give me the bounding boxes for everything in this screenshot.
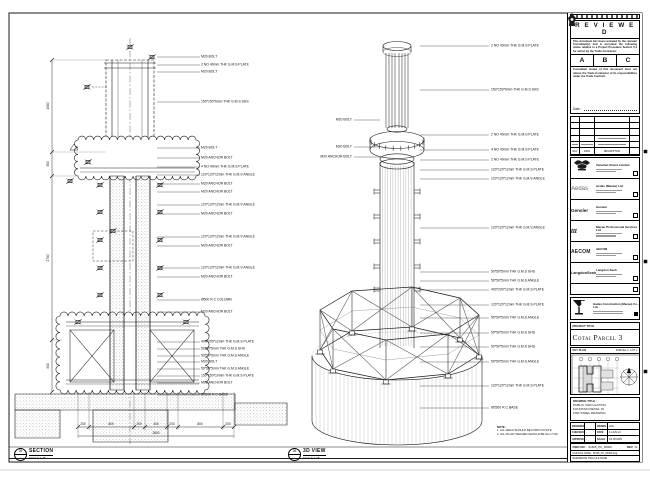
iso-detail-bubble: 06-	[288, 448, 301, 461]
section-annotation: Ø500 R.C COLUMN	[201, 298, 232, 301]
status-option-c: C	[616, 55, 639, 66]
consultant-checkbox	[633, 171, 639, 177]
section-annotation: M20 BOLT	[201, 55, 217, 58]
section-annotation: 50*50*5mm THK G.M.S ANGLE	[201, 367, 249, 370]
section-scale: SCALE 1:25	[29, 455, 53, 460]
dimension-value: 400	[153, 422, 158, 426]
sheet-shadow	[0, 469, 650, 471]
key-plan-drawing	[570, 353, 640, 396]
date-fill-line	[584, 106, 637, 111]
consultant-name: Aedas (Macau) Ltd.	[596, 185, 624, 188]
iso-title: 3D VIEW	[303, 448, 326, 454]
section-annotation: M20 ANCHOR BOLT	[201, 275, 233, 278]
iso-annotation: M20 BOLT	[336, 118, 352, 121]
section-annotation: 120*120*12mm THK G.M.S ANGLE	[201, 266, 255, 269]
title-block: R E V I E W E D This document has been r…	[567, 13, 642, 462]
cad-file-rows: CAD FILE NAME : 51525_PC_00000.dwg REFER…	[570, 451, 640, 462]
project-name-row: Cotai Parcel 3	[570, 329, 640, 346]
section-annotation: M20 ANCHOR BOLT	[201, 310, 233, 313]
mps-logo: ttt	[571, 227, 596, 235]
section-annotation: M20 BOLT	[201, 360, 217, 363]
dimension-value: 200	[80, 422, 85, 426]
section-annotation: M20 BOLT	[201, 146, 217, 149]
section-annotation: 400*200*12mm THK G.M.S PLATE	[201, 340, 254, 343]
section-annotation: 150*150*10mm THK G.M.S PLATE	[201, 374, 254, 377]
review-status-options: A B C	[571, 54, 639, 67]
consultant-name: Macau Professional Services Ltd.	[596, 226, 639, 233]
section-detail-bubble: 05-	[14, 448, 27, 461]
iso-annotation: 120*120*12mm THK G.M.S PLATE	[491, 168, 544, 171]
section-annotation: Ø2500 R.C BASE	[201, 393, 228, 396]
contractor-name: Hadao Construction (Macau) Co., Ltd.	[593, 303, 639, 310]
iso-caption: 06- 3D VIEW SCALE 1:25	[288, 448, 326, 461]
drawing-title-line: FOR STEEL DRAWING	[573, 412, 637, 416]
rev-header: REV	[571, 148, 580, 154]
review-date-row: Date :	[573, 80, 637, 111]
section-annotation: M20 BOLT	[201, 70, 217, 73]
iso-annotation: 50*50*5mm THK G.M.S SHS	[491, 270, 535, 273]
section-annotation: 50*50*5mm THK G.M.S SHS	[201, 347, 245, 350]
dwg-no-value: 51525_PC_00000	[588, 445, 611, 449]
dimension-value: 900	[46, 363, 50, 368]
aecom-logo: AECOM	[571, 249, 596, 255]
gensler-logo: Gensler	[571, 208, 596, 213]
iso-annotation: Ø2500 R.C BASE	[491, 406, 518, 409]
iso-annotation: 2 NO 40mm THK G.M.S PLATE	[491, 133, 539, 136]
iso-annotation: 400*200*12mm THK G.M.S PLATE	[491, 288, 544, 291]
iso-annotation: 150*150*6mm THK G.M.S SHS	[491, 88, 539, 91]
dimension-value: 200	[136, 422, 141, 426]
consultant-checkbox	[633, 213, 639, 219]
drawing-title-block: DRAWING TITLE : PUBLIC CIRCULATION, FOUN…	[570, 397, 640, 421]
dimension-value: 2700	[46, 254, 50, 261]
section-title: SECTION	[29, 448, 53, 454]
section-annotation: M20 ANCHOR BOLT	[201, 212, 233, 215]
section-annotation: 2 NO 40mm THK G.M.S PLATE	[201, 63, 249, 66]
drawing-number-row: DWG NO : 51525_PC_00000 REV : C	[570, 443, 640, 451]
consultant-name: Langdon Seah	[596, 269, 622, 272]
consultant-list: Venetian Orient Limited Aedas Aedas (Mac…	[570, 157, 640, 295]
iso-scale: SCALE 1:25	[303, 455, 326, 460]
contractor-block: Hadao Construction (Macau) Co., Ltd.	[570, 297, 640, 321]
iso-annotation: 120*120*12mm THK G.M.S ANGLE	[491, 226, 545, 229]
iso-view-linework	[312, 42, 484, 446]
dimension-value: 800	[108, 422, 113, 426]
dimension-value: 800	[197, 422, 202, 426]
iso-annotation: M20 BOLT	[336, 145, 352, 148]
section-annotation: M20 ANCHOR BOLT	[201, 244, 233, 247]
consultant-checkbox	[633, 255, 639, 261]
iso-annotation: M20 ANCHOR BOLT	[320, 155, 352, 158]
status-option-b: B	[593, 55, 616, 66]
langdon-seah-logo: LangdonSeah	[571, 271, 596, 275]
general-notes: NOTE : 1. ALL WELD SHOULD BE FORM ON SIT…	[497, 426, 565, 436]
consultant-checkbox	[633, 287, 639, 293]
parcel-label: PARCEL 1, LOT 2	[616, 349, 638, 352]
date-header: DATE	[580, 148, 595, 154]
emblem-icon	[568, 13, 576, 27]
aedas-logo: Aedas	[571, 186, 596, 192]
consultant-row-empty	[571, 283, 639, 294]
bolt-symbols	[66, 44, 189, 324]
reference-dwg-label: REFERENCE DWG FILE NAME :	[571, 455, 639, 461]
description-header: DESCRIPTION	[595, 148, 630, 154]
review-stamp-disclaimer: Consultant review of this document does …	[573, 68, 637, 78]
key-plan-label: KEY PLAN	[573, 349, 587, 352]
consultant-row-venetian: Venetian Orient Limited	[571, 158, 639, 178]
consultant-checkbox	[633, 234, 639, 240]
contractor-stamp-square	[634, 312, 638, 316]
section-annotation: M20 ANCHOR BOLT	[201, 381, 233, 384]
iso-annotation: 120*120*12mm THK G.M.S PLATE	[491, 384, 544, 387]
dwg-no-label: DWG NO :	[573, 445, 587, 449]
dimension-value: 300	[46, 161, 50, 166]
iso-annotation: 50*50*5mm THK G.M.S ANGLE	[491, 360, 539, 363]
iso-annotation: 50*50*5mm THK G.M.S ANGLE	[491, 279, 539, 282]
compass-rose-icon	[620, 368, 638, 386]
note-line: 2. ALL FILLET WELDED SHOULD BE 6mm THK.	[497, 433, 565, 436]
consultant-row-aecom: AECOM AECOM	[571, 241, 639, 262]
consultant-checkbox	[633, 276, 639, 282]
consultant-row-aedas: Aedas Aedas (Macau) Ltd.	[571, 178, 639, 199]
consultant-row-langdon: LangdonSeah Langdon Seah	[571, 262, 639, 283]
section-annotation: 120*120*12mm THK G.M.S ANGLE	[201, 203, 255, 206]
section-annotation: 150*150*6mm THK G.M.S SHS	[201, 100, 249, 103]
status-option-a: A	[571, 55, 593, 66]
iso-annotation: 50*50*5mm THK G.M.S SHS	[491, 331, 535, 334]
drawing-linework	[0, 0, 650, 488]
iso-annotation: 50*50*5mm THK G.M.S SHS	[491, 345, 535, 348]
section-caption: 05- SECTION SCALE 1:25	[14, 448, 53, 461]
section-annotation: 50*50*5mm THK G.M.S ANGLE	[201, 354, 249, 357]
cad-drawing-sheet: M20 BOLT2 NO 40mm THK G.M.S PLATEM20 BOL…	[0, 0, 650, 488]
section-annotation: M20 ANCHOR BOLT	[201, 156, 233, 159]
iso-annotation: 120*120*12mm THK G.M.S PLATE	[491, 303, 544, 306]
section-annotation: 4 NO 40mm THK G.M.S PLATE	[201, 165, 249, 168]
consultant-name: AECOM	[596, 248, 622, 251]
approval-fields: DESIGNED DRAWN LEO CHECKED - DATE 14-JUN…	[570, 422, 640, 443]
section-annotation: M20 ANCHOR BOLT	[201, 182, 233, 185]
iso-annotation: 120*120*12mm THK G.M.S ANGLE	[491, 177, 545, 180]
section-annotation: M20 ANCHOR BOLT	[201, 190, 233, 193]
iso-annotation: 50*50*5mm THK G.M.S ANGLE	[491, 316, 539, 319]
section-annotation: 120*120*12mm THK G.M.S ANGLE	[201, 173, 255, 176]
revision-table: REV DATE DESCRIPTION	[570, 116, 640, 156]
iso-annotation: 2 NO 40mm THK G.M.S PLATE	[491, 158, 539, 161]
revision-value: REV : C	[627, 445, 638, 449]
consultant-name: Venetian Orient Limited	[596, 164, 630, 167]
review-stamp-body: This document has been reviewed by the r…	[573, 40, 637, 54]
project-name: Cotai Parcel 3	[573, 333, 623, 342]
consultant-row-mps: ttt Macau Professional Services Ltd.	[571, 220, 639, 241]
consultant-checkbox	[633, 192, 639, 198]
section-annotation: 120*120*12mm THK G.M.S ANGLE	[201, 235, 255, 238]
consultant-name: Gensler	[596, 206, 622, 209]
dimension-total: 2800	[152, 431, 159, 435]
date-label: Date :	[573, 107, 582, 111]
dimension-value: 200	[225, 422, 230, 426]
review-stamp-title: R E V I E W E D	[571, 21, 639, 39]
consultant-row-gensler: Gensler Gensler	[571, 199, 639, 220]
iso-annotation: 2 NO 40mm THK G.M.S PLATE	[491, 44, 539, 47]
sheet-number-strip	[570, 14, 640, 19]
dimension-value: 1500	[46, 102, 50, 109]
dimension-value: 200	[169, 422, 174, 426]
iso-annotation: 4 NO 40mm THK G.M.S PLATE	[491, 148, 539, 151]
project-title-header: PROJECT TITLE	[570, 322, 640, 329]
review-stamp: R E V I E W E D This document has been r…	[570, 20, 640, 114]
